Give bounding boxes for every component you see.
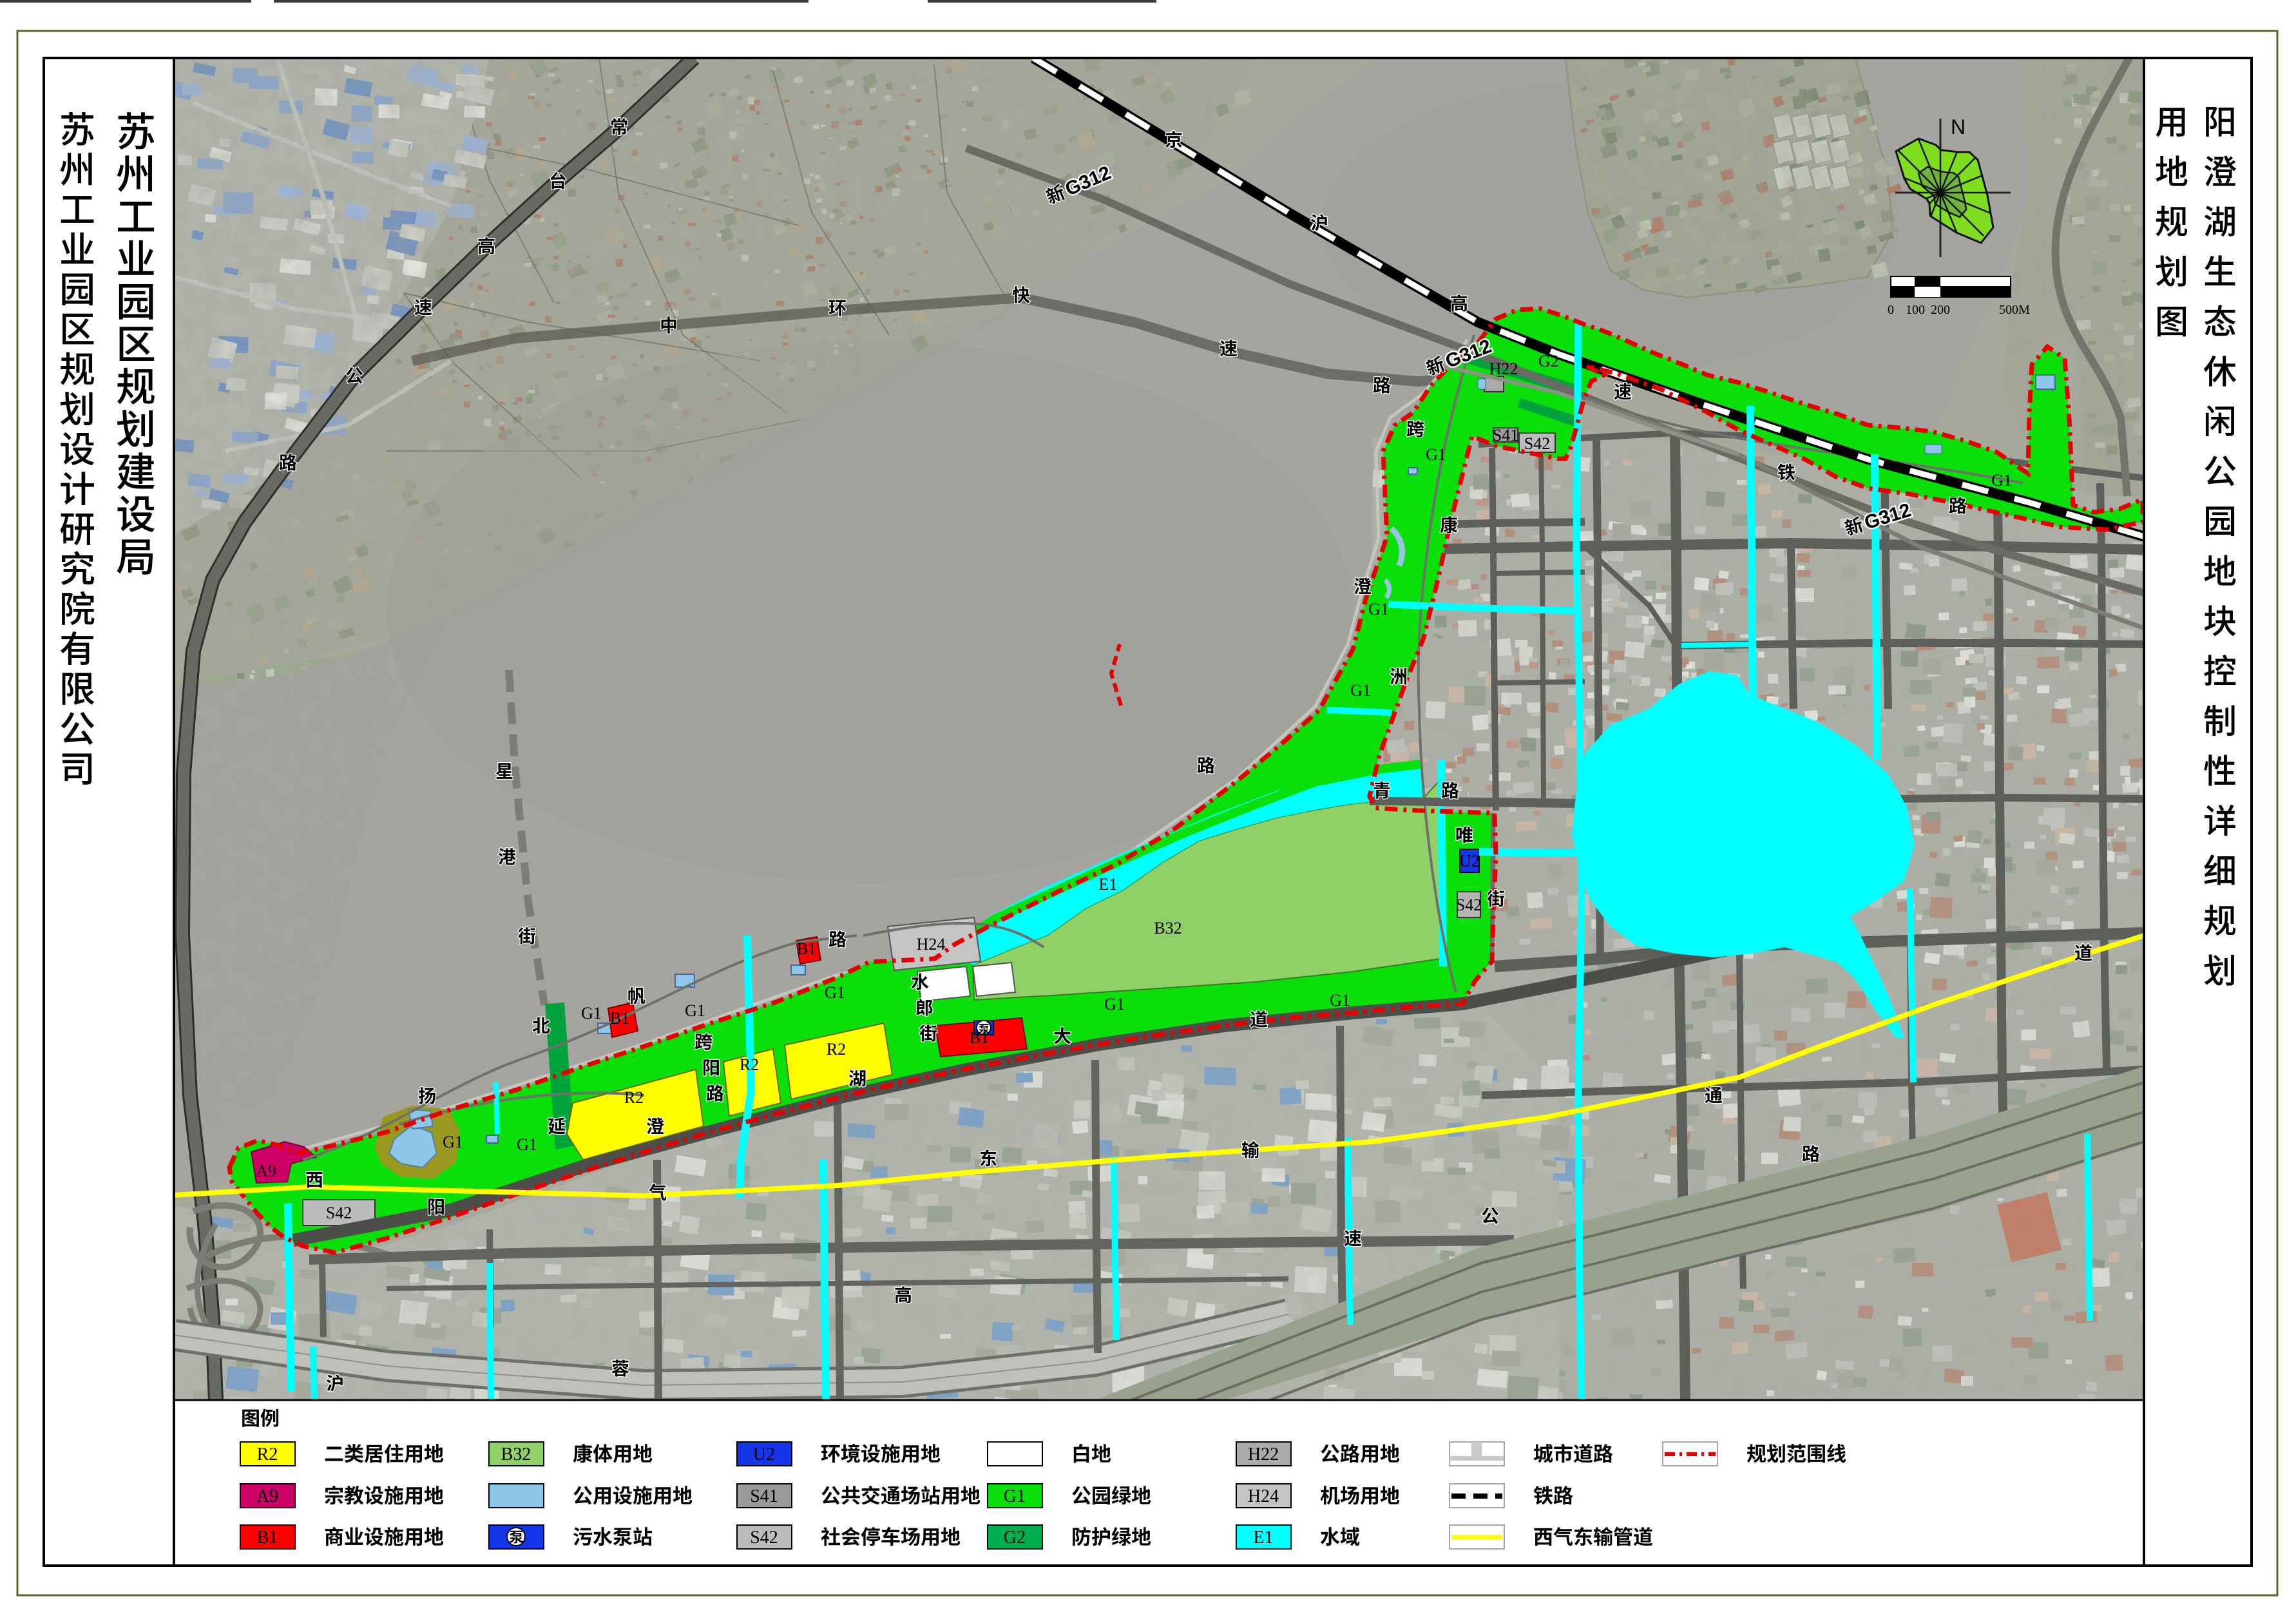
svg-text:G1: G1 — [1330, 991, 1350, 1010]
svg-text:H24: H24 — [1248, 1486, 1279, 1506]
svg-text:G1: G1 — [517, 1135, 537, 1154]
svg-text:S42: S42 — [326, 1204, 352, 1222]
svg-text:R2: R2 — [624, 1088, 644, 1107]
svg-text:G2: G2 — [1004, 1528, 1026, 1548]
svg-text:A9: A9 — [256, 1486, 278, 1506]
svg-text:U2: U2 — [1459, 852, 1480, 870]
svg-text:U2: U2 — [753, 1445, 775, 1465]
svg-text:G1: G1 — [1426, 445, 1446, 464]
svg-text:N: N — [1951, 115, 1966, 139]
svg-text:S41: S41 — [750, 1486, 778, 1506]
svg-text:R2: R2 — [257, 1445, 278, 1465]
svg-text:G1: G1 — [1004, 1486, 1026, 1506]
svg-text:G1: G1 — [685, 1001, 705, 1020]
svg-text:B32: B32 — [501, 1445, 531, 1465]
svg-text:A9: A9 — [256, 1162, 276, 1180]
svg-text:200: 200 — [1931, 303, 1950, 317]
svg-text:B1: B1 — [797, 939, 816, 958]
svg-text:B1: B1 — [610, 1009, 629, 1028]
svg-text:H24: H24 — [917, 935, 946, 954]
svg-text:R2: R2 — [827, 1040, 846, 1059]
svg-text:B1: B1 — [970, 1028, 989, 1047]
svg-text:G1: G1 — [581, 1004, 602, 1023]
svg-text:G1: G1 — [1991, 471, 2012, 490]
svg-text:E1: E1 — [1253, 1528, 1273, 1548]
svg-text:G2: G2 — [1538, 352, 1559, 370]
svg-text:100: 100 — [1906, 303, 1925, 317]
svg-text:500M: 500M — [1999, 303, 2030, 317]
svg-text:S42: S42 — [1524, 434, 1550, 453]
svg-text:E1: E1 — [1099, 875, 1118, 894]
svg-text:H22: H22 — [1489, 360, 1518, 378]
svg-text:G1: G1 — [1104, 995, 1125, 1013]
svg-text:R2: R2 — [740, 1055, 759, 1074]
svg-text:G1: G1 — [825, 983, 845, 1002]
svg-text:G1: G1 — [1368, 600, 1389, 619]
svg-text:S42: S42 — [1456, 896, 1482, 914]
svg-text:0: 0 — [1888, 303, 1894, 317]
svg-text:G1: G1 — [443, 1133, 463, 1151]
svg-text:G1: G1 — [1350, 681, 1371, 700]
svg-text:B1: B1 — [257, 1528, 278, 1548]
svg-text:S42: S42 — [750, 1528, 778, 1548]
svg-text:H22: H22 — [1248, 1445, 1279, 1465]
svg-text:B32: B32 — [1154, 919, 1181, 937]
svg-text:S41: S41 — [1493, 426, 1518, 445]
